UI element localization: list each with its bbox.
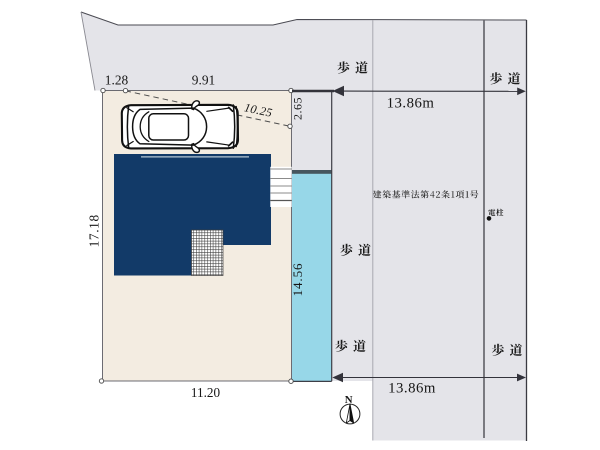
svg-text:13.86m: 13.86m [388,381,436,397]
svg-text:9.91: 9.91 [192,73,215,88]
svg-text:2.65: 2.65 [290,97,304,120]
svg-text:1.28: 1.28 [105,73,129,88]
svg-text:17.18: 17.18 [86,214,101,247]
svg-text:13.86m: 13.86m [387,96,435,112]
svg-text:14.56: 14.56 [290,263,305,297]
svg-text:11.20: 11.20 [191,385,221,400]
